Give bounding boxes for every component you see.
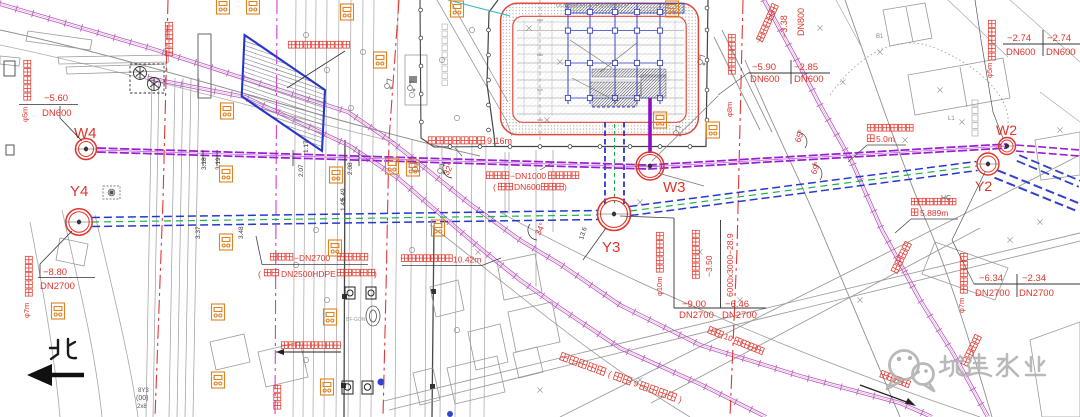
svg-text:−2.85: −2.85 bbox=[794, 62, 818, 73]
svg-text:3.18: 3.18 bbox=[201, 157, 208, 170]
svg-text:Y3: Y3 bbox=[602, 239, 620, 256]
svg-text:−2.34: −2.34 bbox=[1022, 273, 1046, 284]
svg-text:W2: W2 bbox=[996, 122, 1017, 138]
svg-text:6000x3000−28.9: 6000x3000−28.9 bbox=[725, 233, 735, 297]
svg-text:DN2700: DN2700 bbox=[1019, 288, 1054, 299]
svg-text:3.48: 3.48 bbox=[238, 226, 245, 239]
svg-text:9.16m: 9.16m bbox=[487, 136, 512, 146]
svg-text:−DN1000: −DN1000 bbox=[510, 171, 546, 181]
svg-text:L1: L1 bbox=[948, 116, 955, 122]
svg-text:2x8: 2x8 bbox=[137, 404, 147, 410]
svg-text:DN2700: DN2700 bbox=[722, 310, 757, 321]
svg-text:): ) bbox=[564, 182, 567, 192]
svg-text:φ7m: φ7m bbox=[22, 303, 31, 318]
svg-text:DN600: DN600 bbox=[42, 108, 72, 119]
svg-text:(00): (00) bbox=[136, 395, 148, 402]
svg-text:W4: W4 bbox=[74, 125, 97, 142]
svg-text:5.49: 5.49 bbox=[340, 188, 347, 201]
svg-text:φ5m: φ5m bbox=[21, 107, 30, 122]
svg-text:2.08: 2.08 bbox=[347, 162, 354, 175]
svg-text:DN2700: DN2700 bbox=[975, 288, 1010, 299]
svg-text:−2.74: −2.74 bbox=[1007, 33, 1031, 44]
svg-text:DN2500HDPE: DN2500HDPE bbox=[281, 269, 336, 279]
svg-text:DN600: DN600 bbox=[794, 74, 824, 85]
svg-text:DN800: DN800 bbox=[796, 8, 806, 36]
svg-text:−8.80: −8.80 bbox=[43, 267, 67, 278]
svg-text:−6.34: −6.34 bbox=[979, 273, 1003, 284]
svg-text:Y4: Y4 bbox=[70, 183, 88, 200]
svg-text:φ8m: φ8m bbox=[725, 102, 734, 117]
svg-text:DN2700: DN2700 bbox=[679, 310, 714, 321]
svg-text:φ7m: φ7m bbox=[957, 298, 966, 313]
svg-text:): ) bbox=[374, 269, 377, 279]
svg-text:8Y3: 8Y3 bbox=[138, 388, 149, 394]
svg-text:B1: B1 bbox=[876, 34, 884, 40]
svg-text:−2.74: −2.74 bbox=[1047, 33, 1071, 44]
svg-text:DN600: DN600 bbox=[1046, 47, 1076, 58]
svg-text:DN600: DN600 bbox=[1006, 47, 1036, 58]
svg-text:−6.46: −6.46 bbox=[725, 299, 749, 310]
svg-text:3.37: 3.37 bbox=[195, 226, 202, 239]
svg-text:(: ( bbox=[258, 269, 261, 279]
svg-text:5.0m: 5.0m bbox=[876, 134, 895, 144]
svg-text:−3.38: −3.38 bbox=[779, 15, 789, 38]
svg-text:−9.00: −9.00 bbox=[682, 299, 706, 310]
svg-text:Y2: Y2 bbox=[975, 178, 992, 194]
svg-text:−5.60: −5.60 bbox=[44, 93, 68, 104]
svg-text:−DN2700: −DN2700 bbox=[294, 253, 330, 263]
svg-text:−5.90: −5.90 bbox=[752, 62, 776, 73]
svg-text:1.17: 1.17 bbox=[303, 140, 310, 153]
svg-text:DN2700: DN2700 bbox=[40, 281, 75, 292]
svg-text:DN600: DN600 bbox=[750, 74, 780, 85]
svg-text:5.889m: 5.889m bbox=[920, 208, 948, 218]
svg-text:(: ( bbox=[493, 182, 496, 192]
svg-text:W3: W3 bbox=[663, 179, 686, 196]
svg-text:BF-GON: BF-GON bbox=[346, 317, 366, 323]
svg-text:−3.50: −3.50 bbox=[704, 255, 714, 277]
svg-text:HC: HC bbox=[941, 195, 951, 202]
svg-text:3.19: 3.19 bbox=[215, 157, 222, 170]
svg-text:OOMMA-AYLMA-3OI-AHELP: OOMMA-AYLMA-3OI-AHELP bbox=[556, 3, 628, 9]
svg-text:φ10m: φ10m bbox=[655, 277, 664, 296]
svg-text:φ5m: φ5m bbox=[985, 63, 994, 78]
svg-text:10.42m: 10.42m bbox=[453, 255, 481, 265]
svg-text:2.07: 2.07 bbox=[298, 164, 305, 177]
svg-text:DN600: DN600 bbox=[514, 182, 541, 192]
